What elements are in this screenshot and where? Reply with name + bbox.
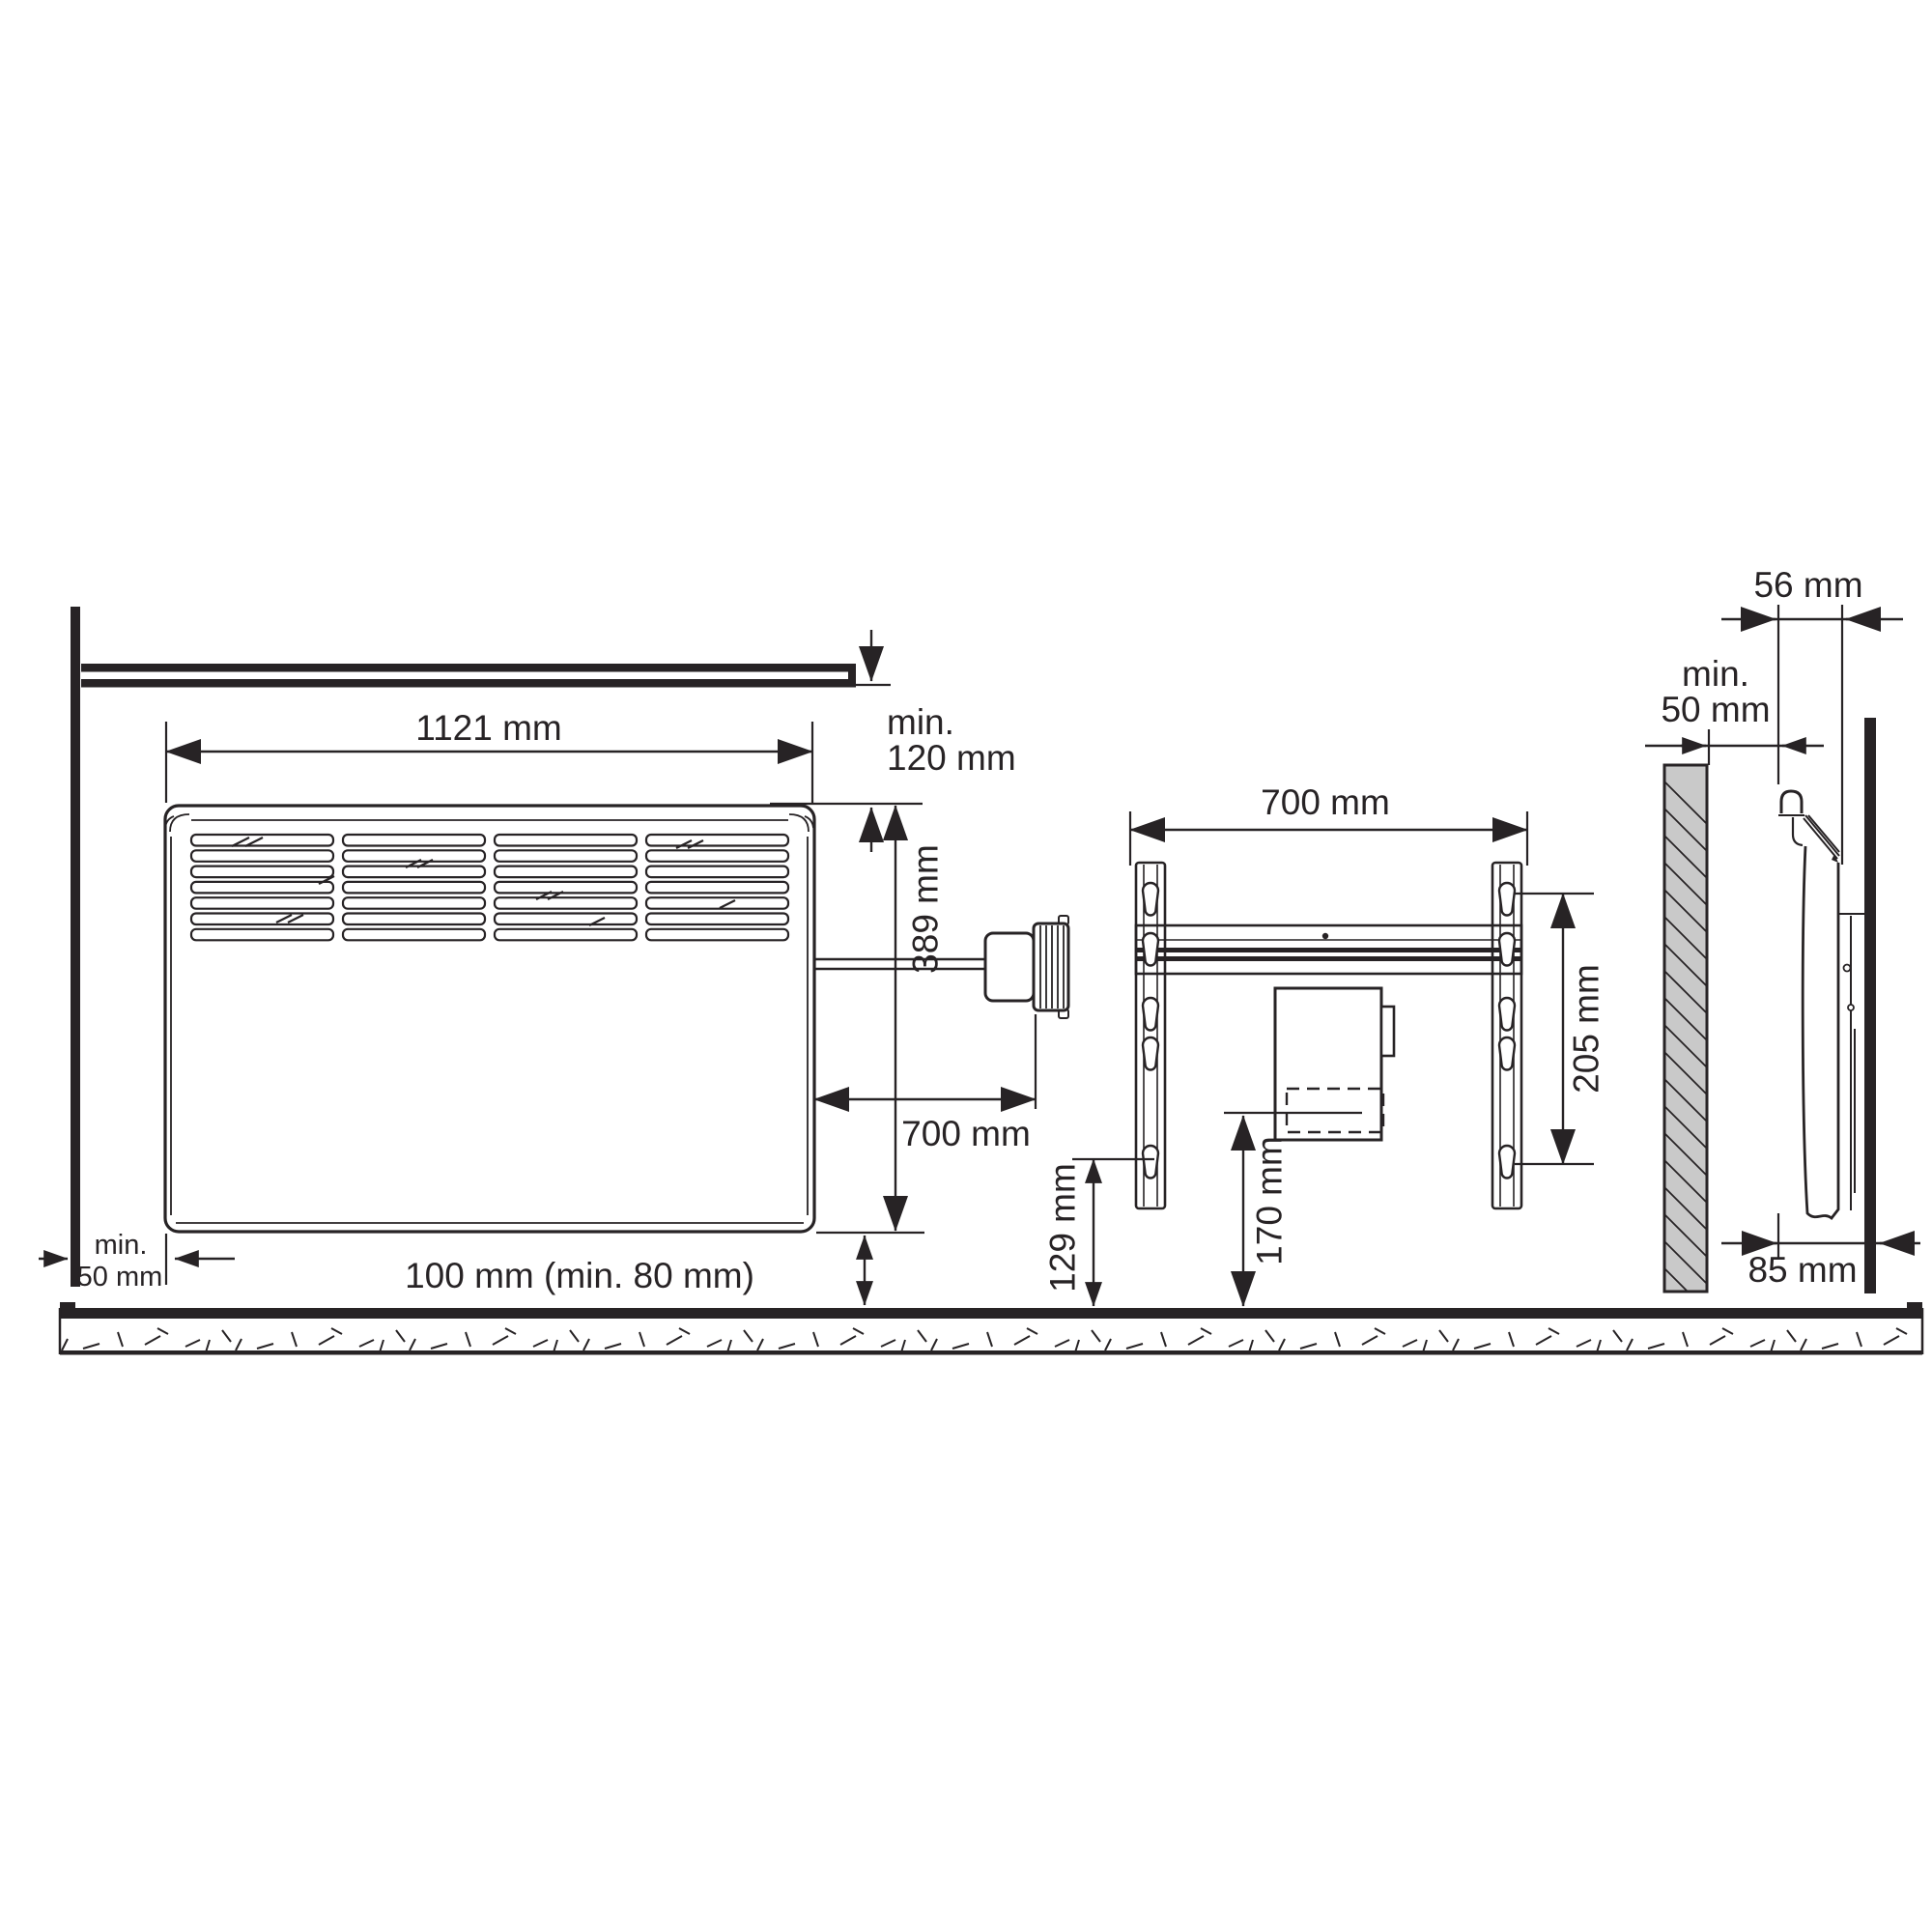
front-height-label: 389 mm xyxy=(906,844,946,974)
side-clearance-value-label: 50 mm xyxy=(77,1262,163,1293)
front-clearance-min-label: min. xyxy=(1682,654,1749,694)
dimension-bottom-clearance: 100 mm (min. 80 mm) xyxy=(405,1233,924,1305)
power-cable xyxy=(814,959,985,969)
dimension-cable-length: 700 mm xyxy=(814,1014,1036,1153)
junction-box xyxy=(1275,988,1394,1140)
heater-top-cap xyxy=(1781,791,1802,813)
total-depth-label: 85 mm xyxy=(1747,1250,1857,1290)
keyhole-to-floor-label: 129 mm xyxy=(1043,1163,1083,1293)
dimension-front-width: 1121 mm xyxy=(166,708,812,803)
heater-front xyxy=(165,806,814,1232)
bracket-width-label: 700 mm xyxy=(1261,782,1390,822)
bottom-clearance-label: 100 mm (min. 80 mm) xyxy=(405,1256,754,1295)
depth-label: 56 mm xyxy=(1753,565,1862,605)
hatched-obstacle xyxy=(1656,765,1716,1347)
dimension-front-clearance: min. 50 mm xyxy=(1645,654,1824,765)
top-clearance-value-label: 120 mm xyxy=(887,738,1016,778)
right-wall xyxy=(1864,718,1876,1293)
dimension-box-to-floor: 170 mm xyxy=(1224,1113,1362,1306)
side-view: 56 mm min. 50 mm xyxy=(1645,565,1920,1347)
heater-installation-diagram: 1121 mm min. 120 mm 389 mm xyxy=(0,0,1932,1932)
front-width-label: 1121 mm xyxy=(415,708,562,748)
diagram-canvas: 1121 mm min. 120 mm 389 mm xyxy=(0,0,1932,1932)
side-clearance-min-label: min. xyxy=(95,1230,148,1261)
front-clearance-value-label: 50 mm xyxy=(1661,690,1770,729)
floor xyxy=(60,1302,1922,1355)
hanging-hook xyxy=(1793,817,1803,845)
dimension-keyhole-span: 205 mm xyxy=(1515,894,1606,1164)
box-to-floor-label: 170 mm xyxy=(1250,1136,1290,1265)
dimension-keyhole-to-floor: 129 mm xyxy=(1043,1159,1155,1306)
bracket-cross-rail xyxy=(1136,925,1521,974)
shelf xyxy=(81,664,856,688)
dimension-bracket-width: 700 mm xyxy=(1130,782,1527,866)
power-plug xyxy=(985,916,1068,1018)
rear-bracket-detail xyxy=(1838,914,1864,1210)
cable-length-label: 700 mm xyxy=(901,1114,1031,1153)
front-view: 1121 mm min. 120 mm 389 mm xyxy=(39,607,1068,1305)
dimension-total-depth: 85 mm xyxy=(1721,1213,1920,1290)
cross-rail-hole xyxy=(1322,933,1328,939)
top-clearance-min-label: min. xyxy=(887,702,954,742)
bracket-view: 700 mm xyxy=(1043,782,1606,1306)
dimension-side-clearance: min. 50 mm xyxy=(39,1230,235,1293)
heater-side xyxy=(1778,791,1864,1218)
left-wall xyxy=(71,607,80,1287)
floor-speckle xyxy=(60,1319,1922,1352)
keyhole-span-label: 205 mm xyxy=(1567,964,1606,1094)
dimension-front-height: 389 mm xyxy=(895,806,946,1231)
